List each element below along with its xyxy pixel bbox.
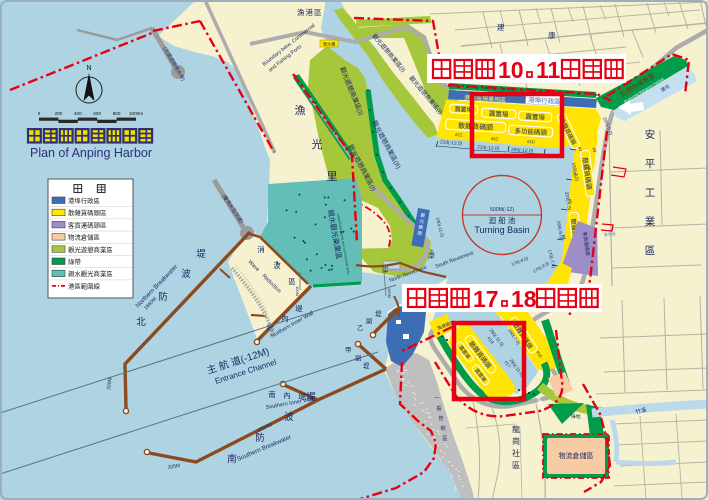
svg-text:平: 平 xyxy=(645,158,656,170)
svg-text:港區範圍線: 港區範圍線 xyxy=(68,281,101,290)
svg-text:一: 一 xyxy=(434,396,439,402)
svg-text:內: 內 xyxy=(283,391,291,400)
svg-text:綠帶: 綠帶 xyxy=(68,257,81,266)
svg-text:Turning Basin: Turning Basin xyxy=(474,225,529,235)
svg-text:波: 波 xyxy=(273,260,281,270)
svg-text:南: 南 xyxy=(268,389,276,399)
svg-text:里: 里 xyxy=(327,170,338,183)
svg-text:0: 0 xyxy=(38,111,41,116)
svg-text:17: 17 xyxy=(473,286,499,312)
svg-text:康: 康 xyxy=(548,30,556,40)
svg-text:200: 200 xyxy=(55,111,63,116)
svg-text:500M(-12): 500M(-12) xyxy=(490,207,514,213)
svg-text:岸: 岸 xyxy=(382,266,389,274)
svg-text:防: 防 xyxy=(255,432,265,444)
svg-text:客貨運碼頭區: 客貨運碼頭區 xyxy=(68,220,107,229)
svg-text:11: 11 xyxy=(536,57,561,83)
svg-text:龍: 龍 xyxy=(512,424,520,434)
svg-text:100M: 100M xyxy=(295,286,300,296)
svg-text:堤: 堤 xyxy=(375,309,382,318)
svg-text:Plan of Anping Harbor: Plan of Anping Harbor xyxy=(30,146,152,160)
svg-text:#11: #11 xyxy=(491,136,499,141)
svg-text:#12: #12 xyxy=(455,132,463,137)
svg-text:漁光橋: 漁光橋 xyxy=(323,41,336,48)
svg-text:N: N xyxy=(86,65,91,72)
svg-text:區: 區 xyxy=(645,245,656,257)
svg-text:副: 副 xyxy=(366,316,373,325)
svg-text:1000m: 1000m xyxy=(129,111,143,116)
svg-text:觀光遊憩商業區: 觀光遊憩商業區 xyxy=(68,245,113,254)
svg-text:工: 工 xyxy=(645,187,656,199)
svg-text:堤: 堤 xyxy=(306,391,316,403)
svg-text:漁: 漁 xyxy=(295,103,306,117)
svg-text:600: 600 xyxy=(93,111,101,116)
svg-text:區: 區 xyxy=(288,277,296,286)
svg-text:波: 波 xyxy=(284,411,294,423)
svg-text:散雜貨碼頭區: 散雜貨碼頭區 xyxy=(68,208,107,217)
svg-text:400: 400 xyxy=(74,111,82,116)
svg-text:社: 社 xyxy=(512,448,520,458)
svg-text:般: 般 xyxy=(436,405,441,412)
svg-text:18: 18 xyxy=(511,286,537,312)
svg-text:區: 區 xyxy=(512,461,520,470)
svg-text:安平門: 安平門 xyxy=(604,232,616,237)
svg-text:崗: 崗 xyxy=(512,437,520,446)
svg-text:區: 區 xyxy=(442,436,447,442)
svg-text:物流倉儲區: 物流倉儲區 xyxy=(559,451,594,460)
svg-text:乙: 乙 xyxy=(357,324,364,332)
svg-text:物流倉儲區: 物流倉儲區 xyxy=(68,233,101,242)
svg-text:建: 建 xyxy=(497,22,505,32)
svg-text:內: 內 xyxy=(281,314,289,323)
svg-text:漁港區: 漁港區 xyxy=(297,7,323,17)
svg-text:160M: 160M xyxy=(387,288,392,298)
svg-text:#10: #10 xyxy=(527,139,535,144)
svg-text:業: 業 xyxy=(645,215,656,228)
svg-text:綠地: 綠地 xyxy=(571,413,581,420)
svg-text:波: 波 xyxy=(181,268,191,280)
svg-text:800: 800 xyxy=(113,111,121,116)
svg-text:制: 制 xyxy=(440,425,445,432)
svg-text:堤: 堤 xyxy=(295,303,303,313)
svg-text:消: 消 xyxy=(257,244,265,254)
svg-text:北: 北 xyxy=(136,317,146,328)
svg-text:親水觀光商業區: 親水觀光商業區 xyxy=(68,269,113,278)
svg-text:安: 安 xyxy=(645,128,656,141)
svg-text:10: 10 xyxy=(498,57,524,83)
svg-text:堤: 堤 xyxy=(363,361,370,370)
svg-text:管: 管 xyxy=(438,415,443,422)
svg-text:港埠行政區: 港埠行政區 xyxy=(68,196,101,205)
svg-text:北: 北 xyxy=(266,323,274,332)
svg-text:南: 南 xyxy=(227,453,237,465)
svg-text:甲: 甲 xyxy=(345,346,352,354)
svg-text:迴 船 池: 迴 船 池 xyxy=(489,215,516,225)
svg-text:光: 光 xyxy=(312,137,323,151)
svg-text:防: 防 xyxy=(158,291,168,303)
svg-text:副: 副 xyxy=(355,353,362,362)
svg-text:堤: 堤 xyxy=(196,248,206,260)
